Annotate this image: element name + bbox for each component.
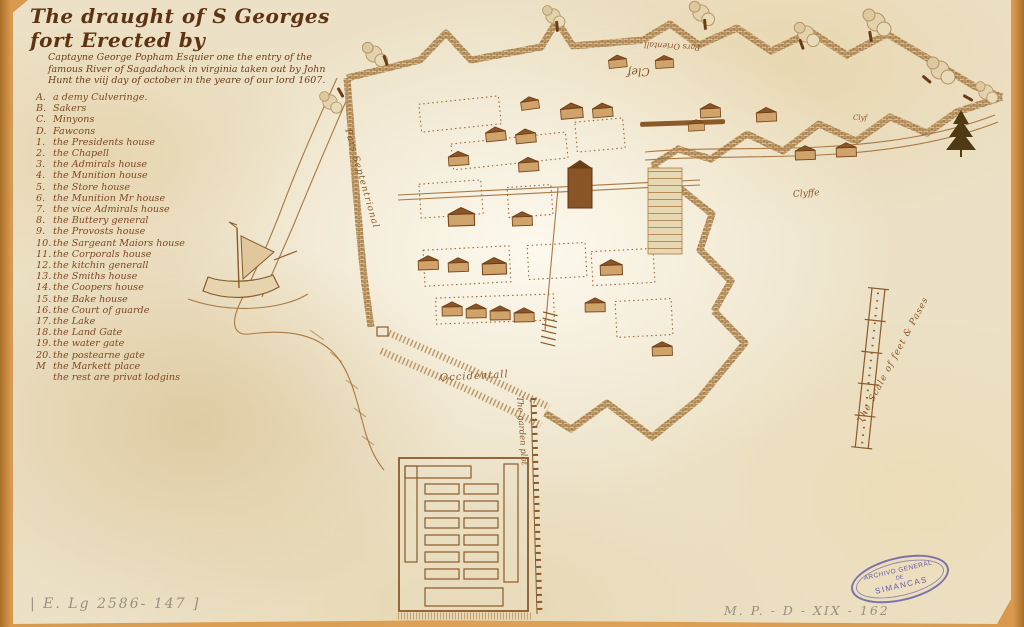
legend-item: 7.the vice Admirals house [36,204,236,215]
title-line-3: famous River of Sagadahock in virginia t… [30,64,370,76]
page-title: The draught of S Georges fort Erected by [30,4,370,52]
legend-item: 11.the Corporals house [36,249,236,260]
legend-item: Mthe Markett place [36,361,236,372]
legend-item: 1.the Presidents house [36,137,236,148]
great-cannon [640,119,725,127]
map-legend: A.a demy Culveringe. B.Sakers C.Minyons … [36,92,236,383]
legend-item: 2.the Chapell [36,148,236,159]
legend-item: 9.the Provosts house [36,226,236,237]
storehouse [568,160,592,208]
map-label-clyffe: Clyffe [793,188,820,200]
shelfmark-left: | E. Lg 2586- 147 ] [30,596,200,612]
legend-item: 14.the Coopers house [36,282,236,293]
legend-item: 10.the Sargeant Maiors house [36,238,236,249]
legend-item: 20.the postearne gate [36,350,236,361]
land-gate [377,327,388,336]
legend-item: the rest are privat lodgins [36,372,236,383]
buildings [418,54,856,356]
legend-item: 15.the Bake house [36,294,236,305]
title-block: The draught of S Georges fort Erected by… [30,4,370,87]
legend-item: 13.the Smiths house [36,271,236,282]
map-label-clef: Clef [627,65,650,79]
legend-item: A.a demy Culveringe. [36,92,236,103]
legend-item: B.Sakers [36,103,236,114]
photographed-map: The draught of S Georges fort Erected by… [0,0,1024,627]
legend-item: 6.the Munition Mr house [36,193,236,204]
legend-item: 16.the Court of guarde [36,305,236,316]
lake [648,168,682,254]
title-line-2: Captayne George Popham Esquier one the e… [30,52,370,64]
legend-item: 5.the Store house [36,182,236,193]
shelfmark-right: M. P. - D - XIX - 162 [724,603,890,618]
legend-item: 19.the water gate [36,338,236,349]
legend-item: 17.the Lake [36,316,236,327]
legend-item: 12.the kitchin generall [36,260,236,271]
title-line-4: Hunt the viij day of october in the year… [30,75,370,87]
legend-item: 4.the Munition house [36,170,236,181]
water-gate-stairs [536,312,563,346]
garden-plot [399,458,528,611]
legend-item: 8.the Buttery general [36,215,236,226]
legend-item: C.Minyons [36,114,236,125]
legend-item: 18.the Land Gate [36,327,236,338]
map-label-clyf: Clyf [853,114,867,122]
legend-item: 3.the Admirals house [36,159,236,170]
legend-item: D.Fawcons [36,126,236,137]
